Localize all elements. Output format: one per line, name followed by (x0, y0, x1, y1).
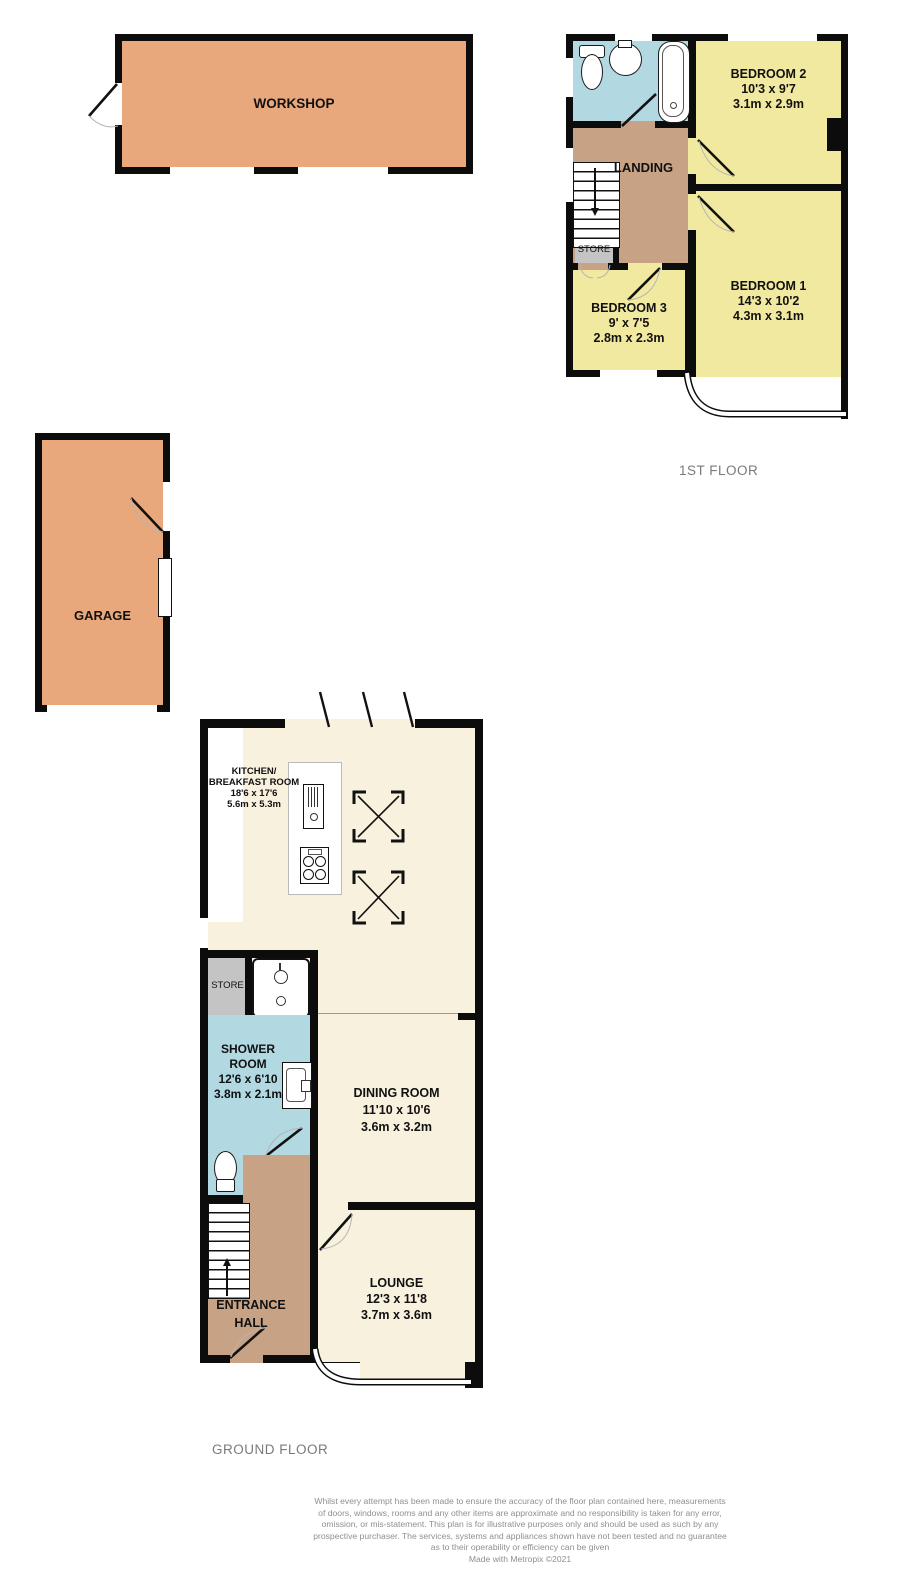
room-name: BREAKFAST ROOM (200, 777, 308, 788)
hob-controls (308, 849, 322, 855)
door-leaf-icon (316, 690, 332, 728)
hob-burner (315, 869, 326, 880)
door-swing-icon (618, 90, 658, 128)
door-swing-icon (578, 263, 612, 283)
disclaimer-line: prospective purchaser. The services, sys… (240, 1531, 800, 1543)
basin-tap-icon (301, 1080, 311, 1092)
store-label-ground: STORE (209, 978, 246, 993)
disclaimer-line: of doors, windows, rooms and any other i… (240, 1508, 800, 1520)
bedroom1-label: BEDROOM 1 14'3 x 10'2 4.3m x 3.1m (696, 279, 841, 324)
room-name: BEDROOM 1 (696, 279, 841, 294)
shower-head-icon (274, 970, 288, 984)
toilet-icon (216, 1179, 235, 1192)
door-leaf-icon (359, 690, 375, 728)
room-name: KITCHEN/ (200, 766, 308, 777)
bedroom2-label: BEDROOM 2 10'3 x 9'7 3.1m x 2.9m (696, 67, 841, 112)
interior-wall (200, 950, 318, 958)
room-imperial: 9' x 7'5 (573, 316, 685, 331)
door-swing-icon (696, 194, 740, 236)
shower-tray-icon (252, 958, 310, 1018)
room-imperial: 12'6 x 6'10 (200, 1072, 296, 1087)
hob-burner (303, 869, 314, 880)
window (728, 34, 817, 41)
window (566, 58, 573, 97)
room-metric: 2.8m x 2.3m (573, 331, 685, 346)
bifold-door-opening (285, 719, 415, 728)
skylight-icon (352, 870, 405, 925)
hob-icon (300, 847, 329, 884)
room-name: GARAGE (35, 608, 170, 623)
room-metric: 3.6m x 3.2m (318, 1119, 475, 1136)
room-name: BEDROOM 2 (696, 67, 841, 82)
room-name: ENTRANCE (200, 1296, 302, 1314)
room-metric: 4.3m x 3.1m (696, 309, 841, 324)
ground-floor-plan: KITCHEN/ BREAKFAST ROOM 18'6 x 17'6 5.6m… (200, 690, 483, 1405)
ground-floor-label: GROUND FLOOR (212, 1442, 328, 1457)
room-name: STORE (575, 242, 613, 257)
room-name: ROOM (200, 1057, 296, 1072)
hob-burner (303, 856, 314, 867)
bay-window (678, 370, 848, 422)
disclaimer: Whilst every attempt has been made to en… (240, 1496, 800, 1565)
floorplan-page: WORKSHOP (0, 0, 900, 1574)
garage-room (42, 440, 163, 705)
door-swing-icon (73, 76, 121, 134)
fridge-coil (306, 787, 320, 807)
first-floor-plan: BEDROOM 2 10'3 x 9'7 3.1m x 2.9m BEDROOM… (566, 34, 848, 424)
room-metric: 3.1m x 2.9m (696, 97, 841, 112)
room-name: WORKSHOP (115, 96, 473, 111)
stairs-up (208, 1203, 250, 1299)
sink-tap-icon (618, 40, 632, 48)
garage-label: GARAGE (35, 608, 170, 623)
hob-burner (315, 856, 326, 867)
metropix-credit: Made with Metropix ©2021 (240, 1554, 800, 1566)
room-imperial: 18'6 x 17'6 (200, 788, 308, 799)
door-leaf-icon (400, 690, 416, 728)
kitchen-label: KITCHEN/ BREAKFAST ROOM 18'6 x 17'6 5.6m… (200, 766, 308, 810)
room-imperial: 11'10 x 10'6 (318, 1102, 475, 1119)
workshop-window (298, 167, 388, 174)
room-name: BEDROOM 3 (573, 301, 685, 316)
door-swing-icon (127, 488, 165, 536)
room-name: LOUNGE (318, 1275, 475, 1291)
skylight-icon (352, 790, 405, 843)
workshop-window (170, 167, 254, 174)
stairs-arrow-head (591, 208, 599, 216)
bedroom1-door-opening (688, 194, 696, 230)
interior-wall (310, 958, 318, 1020)
fridge-dial (310, 813, 318, 821)
lounge-label: LOUNGE 12'3 x 11'8 3.7m x 3.6m (318, 1275, 475, 1323)
room-name: STORE (209, 978, 246, 993)
door-swing-icon (696, 138, 740, 180)
interior-wall (200, 1195, 248, 1203)
window (566, 148, 573, 202)
room-metric: 3.8m x 2.1m (200, 1087, 296, 1102)
room-metric: 3.7m x 3.6m (318, 1307, 475, 1323)
landing-label: LANDING (596, 160, 691, 175)
room-name: LANDING (596, 160, 691, 175)
stairs-arrow (226, 1266, 228, 1296)
dining-room-label: DINING ROOM 11'10 x 10'6 3.6m x 3.2m (318, 1085, 475, 1136)
store-label-first: STORE (575, 242, 613, 257)
garage-vehicle-door-opening (47, 705, 157, 712)
room-name: HALL (200, 1314, 302, 1332)
door-swing-icon (316, 1208, 358, 1254)
disclaimer-line: as to their operability or efficiency ca… (240, 1542, 800, 1554)
room-imperial: 12'3 x 11'8 (318, 1291, 475, 1307)
bedroom3-label: BEDROOM 3 9' x 7'5 2.8m x 2.3m (573, 301, 685, 346)
shower-room-label: SHOWER ROOM 12'6 x 6'10 3.8m x 2.1m (200, 1042, 296, 1102)
bay-window (305, 1345, 483, 1395)
window (200, 918, 208, 948)
kitchen-dining-opening (318, 1013, 458, 1020)
kitchen-counter (208, 728, 243, 922)
interior-wall (245, 958, 252, 1015)
room-imperial: 10'3 x 9'7 (696, 82, 841, 97)
chimney-breast (827, 118, 841, 151)
bath-drain-icon (670, 102, 677, 109)
door-swing-icon (624, 266, 664, 306)
stairs-arrow-head (223, 1258, 231, 1266)
room-imperial: 14'3 x 10'2 (696, 294, 841, 309)
window (600, 370, 657, 377)
shower-drain-icon (276, 996, 286, 1006)
entrance-hall-label: ENTRANCE HALL (200, 1296, 302, 1332)
toilet-icon (581, 54, 603, 90)
first-floor-label: 1ST FLOOR (679, 463, 758, 478)
room-metric: 5.6m x 5.3m (200, 799, 308, 810)
disclaimer-line: omission, or mis-statement. This plan is… (240, 1519, 800, 1531)
workshop-label: WORKSHOP (115, 96, 473, 111)
garage-plan: GARAGE (35, 433, 170, 712)
room-name: DINING ROOM (318, 1085, 475, 1102)
workshop-plan: WORKSHOP (115, 34, 473, 174)
disclaimer-line: Whilst every attempt has been made to en… (240, 1496, 800, 1508)
beam-line (318, 1013, 458, 1014)
room-name: SHOWER (200, 1042, 296, 1057)
